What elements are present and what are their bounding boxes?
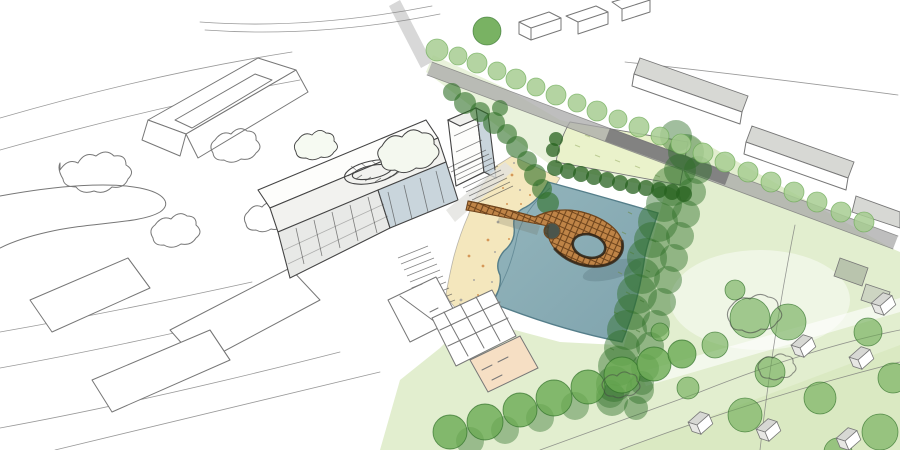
bridge-small-opening-shadow [545, 224, 560, 239]
tree [728, 398, 762, 432]
tree [668, 340, 696, 368]
tree [725, 280, 745, 300]
tree [426, 39, 448, 61]
tree [467, 53, 487, 73]
sand-speckle [529, 194, 531, 196]
avenue-accent-tree [473, 17, 501, 45]
tree [676, 186, 692, 202]
tree [506, 69, 526, 89]
tree [784, 182, 804, 202]
tree [702, 332, 728, 358]
tree [804, 382, 836, 414]
tree [467, 404, 503, 440]
sand-speckle [520, 203, 522, 205]
tree [677, 377, 699, 399]
tree [715, 152, 735, 172]
sketch-canvas [0, 0, 900, 450]
tree [492, 100, 508, 116]
context-block-roof [148, 58, 296, 134]
tree [546, 85, 566, 105]
tree [761, 172, 781, 192]
tree [671, 134, 691, 154]
tree [503, 393, 537, 427]
tree [693, 143, 713, 163]
tree [527, 78, 545, 96]
tree [568, 94, 586, 112]
sand-speckle [473, 279, 475, 281]
tree [854, 212, 874, 232]
sand-speckle [487, 239, 490, 242]
tree [730, 298, 770, 338]
sand-speckle [508, 238, 510, 240]
tree [862, 414, 898, 450]
sand-speckle [502, 187, 504, 189]
tree [609, 110, 627, 128]
tree [807, 192, 827, 212]
context-building [30, 258, 150, 332]
context-box [566, 6, 608, 34]
tree [473, 17, 501, 45]
tree [549, 132, 563, 146]
sand-speckle [513, 162, 515, 164]
sketch-canopy [294, 130, 337, 159]
tree [651, 323, 669, 341]
sketch-tree-clump [59, 152, 132, 192]
masterplan-sketch [0, 0, 900, 450]
context-box [519, 12, 561, 40]
tree [738, 162, 758, 182]
sand-speckle [491, 281, 493, 283]
sand-speckle [482, 265, 485, 268]
tree [587, 101, 607, 121]
context-building [92, 330, 230, 412]
tree [831, 202, 851, 222]
sand-speckle [511, 174, 514, 177]
tree [571, 370, 605, 404]
tree [629, 117, 649, 137]
tree [449, 47, 467, 65]
sand-speckle [519, 189, 521, 191]
tree [433, 415, 467, 449]
tree [854, 318, 882, 346]
sand-speckle [468, 255, 471, 258]
tree [624, 396, 648, 420]
sketch-tree-clump [151, 214, 200, 248]
context-box [612, 0, 650, 21]
sand-speckle [506, 203, 508, 205]
tree [637, 347, 671, 381]
hairpin-road [0, 185, 166, 248]
tree [488, 62, 506, 80]
tree [536, 380, 572, 416]
sand-speckle [494, 251, 496, 253]
tree [651, 127, 669, 145]
sand-speckle [460, 299, 463, 302]
tree [770, 304, 806, 340]
